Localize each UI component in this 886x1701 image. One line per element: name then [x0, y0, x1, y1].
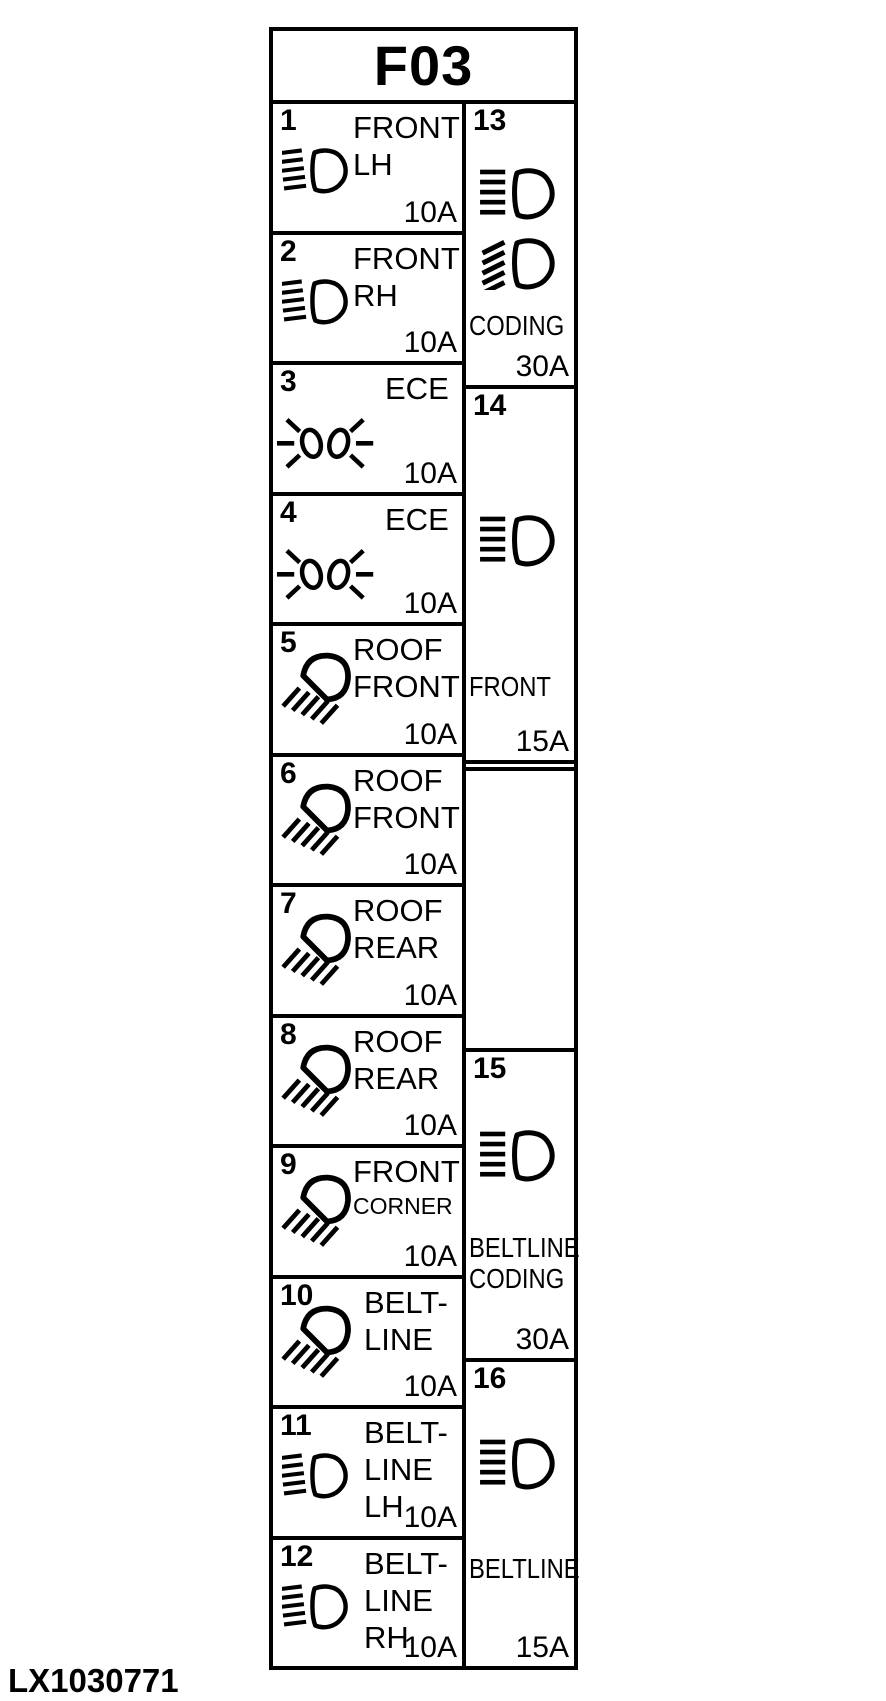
fuse-label: ECE [385, 370, 449, 407]
fuse-cell-10: 10 BELT- LINE 10A [273, 1279, 462, 1410]
fuse-label: BELTLINE CODING [469, 1232, 580, 1294]
fuse-cell-4: 4 ECE 10A [273, 496, 462, 627]
fuse-label-line: LH [353, 146, 460, 183]
high-beam-icon [480, 1438, 564, 1490]
fuse-cell-9: 9 FRONT CORNER 10A [273, 1148, 462, 1279]
fuse-amp-rating: 10A [404, 1502, 457, 1534]
fuse-label-line: LINE [364, 1321, 448, 1358]
work-lamp-icon [281, 1301, 373, 1383]
fuse-cell-11: 11 BELT- LINE LH 10A [273, 1409, 462, 1540]
fuse-box-title-text: F03 [374, 33, 474, 98]
fuse-label-line: ECE [385, 501, 449, 538]
fuse-number: 11 [280, 1411, 312, 1441]
fuse-label-line: FRONT [353, 668, 460, 705]
fuse-label-line: LINE [364, 1451, 448, 1488]
fuse-number: 4 [280, 498, 297, 528]
fuse-label-line: REAR [353, 929, 443, 966]
fuse-columns: 1 FRONT LH 10A 2 FRONT RH 10A [273, 104, 574, 1666]
fuse-cell-14: 14 FRONT 15A [466, 389, 574, 764]
fuse-cell-3: 3 ECE 10A [273, 365, 462, 496]
fuse-cell-2: 2 FRONT RH 10A [273, 235, 462, 366]
fuse-label: CODING [469, 310, 564, 341]
headlight-icon [282, 1584, 356, 1630]
low-beam-icon [480, 238, 564, 290]
fuse-label-line: ROOF [353, 892, 443, 929]
fuse-amp-rating: 10A [404, 849, 457, 881]
left-fuse-column: 1 FRONT LH 10A 2 FRONT RH 10A [273, 104, 466, 1666]
fuse-amp-rating: 10A [404, 719, 457, 751]
fuse-amp-rating: 10A [404, 1241, 457, 1273]
fuse-number: 16 [473, 1364, 506, 1394]
empty-fuse-cell [466, 767, 574, 1052]
position-lamps-icon [275, 407, 377, 476]
position-lamps-icon [275, 538, 377, 607]
fuse-label-line: LINE [364, 1582, 448, 1619]
fuse-label-line: FRONT [353, 1153, 460, 1190]
fuse-amp-rating: 15A [516, 726, 569, 758]
fuse-label-line: REAR [353, 1060, 443, 1097]
fuse-label-line: BELTLINE [469, 1232, 580, 1263]
fuse-label-line: BELT- [364, 1414, 448, 1451]
headlight-icon [282, 148, 356, 194]
fuse-amp-rating: 10A [404, 1371, 457, 1403]
fuse-amp-rating: 10A [404, 1110, 457, 1142]
fuse-amp-rating: 10A [404, 1632, 457, 1664]
fuse-cell-13: 13 CODING 30A [466, 104, 574, 389]
high-beam-icon [480, 1130, 564, 1182]
fuse-label-line: FRONT [469, 671, 551, 702]
fuse-amp-rating: 30A [516, 1324, 569, 1356]
fuse-number: 3 [280, 367, 297, 397]
fuse-number: 13 [473, 106, 506, 136]
fuse-label-line: FRONT [353, 109, 460, 146]
fuse-amp-rating: 10A [404, 327, 457, 359]
fuse-amp-rating: 30A [516, 351, 569, 383]
fuse-label-line: CODING [469, 1263, 580, 1294]
fuse-label-line: RH [353, 277, 460, 314]
fuse-amp-rating: 10A [404, 980, 457, 1012]
fuse-label-line: FRONT [353, 799, 460, 836]
fuse-box-f03: F03 1 FRONT LH 10A 2 FRONT [269, 27, 578, 1670]
fuse-box-title: F03 [273, 31, 574, 104]
fuse-label-line: CORNER [353, 1190, 460, 1222]
fuse-amp-rating: 10A [404, 588, 457, 620]
fuse-label-line: ROOF [353, 631, 460, 668]
fuse-cell-1: 1 FRONT LH 10A [273, 104, 462, 235]
fuse-number: 2 [280, 237, 297, 267]
fuse-cell-5: 5 ROOF FRONT 10A [273, 626, 462, 757]
fuse-amp-rating: 10A [404, 458, 457, 490]
fuse-number: 14 [473, 391, 506, 421]
fuse-label: ROOF REAR [353, 892, 443, 966]
figure-code: LX1030771 [8, 1662, 179, 1700]
headlight-icon [282, 279, 356, 325]
high-beam-icon [480, 168, 564, 220]
right-fuse-column: 13 CODING 30A 14 FRONT 15A [466, 104, 574, 1666]
fuse-label: FRONT CORNER [353, 1153, 460, 1222]
high-beam-icon [480, 515, 564, 567]
fuse-cell-7: 7 ROOF REAR 10A [273, 887, 462, 1018]
fuse-label: ROOF REAR [353, 1023, 443, 1097]
fuse-cell-12: 12 BELT- LINE RH 10A [273, 1540, 462, 1667]
fuse-label: BELT- LINE [364, 1284, 448, 1358]
fuse-label: BELTLINE [469, 1553, 580, 1584]
fuse-number: 1 [280, 106, 297, 136]
fuse-amp-rating: 15A [516, 1632, 569, 1664]
fuse-label-line: BELT- [364, 1545, 448, 1582]
fuse-label-line: ECE [385, 370, 449, 407]
fuse-label-line: BELT- [364, 1284, 448, 1321]
headlight-icon [282, 1453, 356, 1499]
fuse-label-line: CODING [469, 310, 564, 341]
fuse-label: FRONT RH [353, 240, 460, 314]
fuse-label: ROOF FRONT [353, 631, 460, 705]
fuse-cell-6: 6 ROOF FRONT 10A [273, 757, 462, 888]
fuse-label-line: BELTLINE [469, 1553, 580, 1584]
fuse-cell-8: 8 ROOF REAR 10A [273, 1018, 462, 1149]
fuse-label-line: ROOF [353, 1023, 443, 1060]
fuse-label-line: FRONT [353, 240, 460, 277]
fuse-label: ECE [385, 501, 449, 538]
fuse-number: 12 [280, 1542, 313, 1572]
fuse-label-line: ROOF [353, 762, 460, 799]
fuse-cell-16: 16 BELTLINE 15A [466, 1362, 574, 1666]
fuse-label: FRONT [469, 671, 551, 702]
fuse-amp-rating: 10A [404, 197, 457, 229]
fuse-label: ROOF FRONT [353, 762, 460, 836]
fuse-number: 15 [473, 1054, 506, 1084]
fuse-diagram-figure: F03 1 FRONT LH 10A 2 FRONT [0, 0, 886, 1701]
fuse-cell-15: 15 BELTLINE CODING 30A [466, 1052, 574, 1362]
fuse-label: FRONT LH [353, 109, 460, 183]
